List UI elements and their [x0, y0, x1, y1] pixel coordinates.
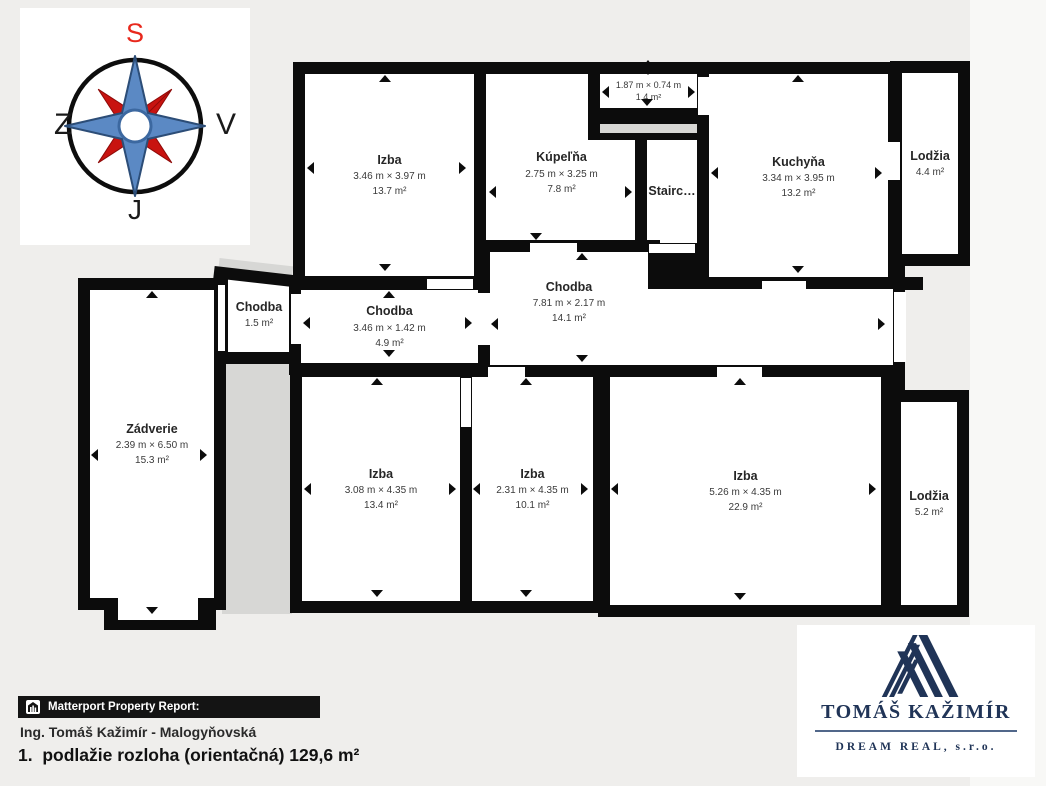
room-area: 15.3 m²	[116, 453, 189, 468]
room-dimensions: 3.46 m × 3.97 m	[353, 169, 426, 184]
wall-arrow-icon	[711, 167, 718, 179]
wall-arrow-icon	[304, 483, 311, 495]
room-name: Izba	[345, 465, 418, 484]
matterport-icon	[26, 700, 40, 714]
wall-arrow-icon	[641, 99, 653, 106]
door-opening	[762, 281, 806, 292]
room-dimensions: 7.81 m × 2.17 m	[533, 296, 606, 311]
room-name: Izba	[496, 465, 569, 484]
room-name: Izba	[353, 151, 426, 170]
room-dimensions: 3.34 m × 3.95 m	[762, 171, 835, 186]
door-opening	[291, 294, 301, 344]
room-kuchyna: Kuchyňa 3.34 m × 3.95 m 13.2 m²	[697, 62, 900, 292]
wall-arrow-icon	[379, 264, 391, 271]
matterport-report-bar: Matterport Property Report:	[18, 696, 320, 718]
wall-arrow-icon	[576, 253, 588, 260]
wall-arrow-icon	[91, 449, 98, 461]
wall-arrow-icon	[734, 593, 746, 600]
room-name: Kuchyňa	[762, 153, 835, 172]
wall-segment	[881, 368, 905, 394]
agency-name: TOMÁŠ KAŽIMÍR	[821, 701, 1011, 724]
wall-arrow-icon	[644, 70, 652, 75]
floorplan-report-page: S V J Z Zádverie 2.39 m × 6.50 m 15.3 m²…	[0, 0, 1046, 786]
wall-arrow-icon	[449, 483, 456, 495]
room-dimensions: 2.75 m × 3.25 m	[525, 167, 598, 182]
door-opening	[530, 243, 577, 253]
door-opening	[488, 367, 525, 377]
room-name: Chodba	[533, 278, 606, 297]
report-bar-label: Matterport Property Report:	[48, 701, 199, 713]
room-area: 14.1 m²	[533, 311, 606, 326]
compass-south-label: J	[128, 194, 142, 226]
room-izba-top-left: Izba 3.46 m × 3.97 m 13.7 m²	[293, 62, 486, 288]
agent-name: Ing. Tomáš Kažimír - Malogyňovská	[20, 724, 256, 740]
room-name: Kúpeľňa	[525, 148, 598, 167]
room-name: Stairc…	[648, 182, 695, 201]
wall-arrow-icon	[530, 233, 542, 240]
room-lodzia-bottom: Lodžia 5.2 m²	[889, 390, 969, 617]
room-area: 13.2 m²	[762, 186, 835, 201]
room-dimensions: 2.39 m × 6.50 m	[116, 438, 189, 453]
wall-arrow-icon	[459, 162, 466, 174]
wall-arrow-icon	[520, 590, 532, 597]
door-opening	[649, 244, 695, 253]
room-name: Chodba	[236, 298, 283, 317]
compass-north-label: S	[126, 18, 144, 49]
wall-arrow-icon	[146, 607, 158, 614]
door-opening	[427, 279, 473, 289]
wall-arrow-icon	[581, 483, 588, 495]
door-opening	[478, 293, 490, 345]
wall-arrow-icon	[688, 86, 695, 98]
room-area: 1.5 m²	[236, 316, 283, 331]
unexplored-area	[222, 360, 292, 614]
wall-arrow-icon	[869, 483, 876, 495]
wall-arrow-icon	[520, 378, 532, 385]
wall-arrow-icon	[200, 449, 207, 461]
wall-arrow-icon	[473, 483, 480, 495]
compass-rose: S V J Z	[20, 8, 250, 245]
stair-strip	[600, 124, 697, 133]
floor-summary: 1. podlažie rozloha (orientačná) 129,6 m…	[18, 745, 359, 766]
room-izba-bottom-right: Izba 5.26 m × 4.35 m 22.9 m²	[598, 365, 893, 617]
door-opening	[218, 285, 225, 351]
wall-arrow-icon	[307, 162, 314, 174]
room-dimensions: 2.31 m × 4.35 m	[496, 483, 569, 498]
room-chodba-main: Chodba 7.81 m × 2.17 m 14.1 m²	[478, 240, 660, 378]
room-area: 13.7 m²	[353, 184, 426, 199]
wall-arrow-icon	[303, 317, 310, 329]
room-area: 10.1 m²	[496, 498, 569, 513]
wall-arrow-icon	[379, 75, 391, 82]
wall-arrow-icon	[875, 167, 882, 179]
wall-arrow-icon	[878, 318, 885, 330]
compass-west-label: Z	[54, 108, 72, 142]
door-opening	[717, 367, 762, 377]
room-name: Chodba	[353, 302, 426, 321]
wall-arrow-icon	[611, 483, 618, 495]
door-opening	[894, 292, 906, 362]
wall-arrow-icon	[792, 266, 804, 273]
door-opening	[698, 77, 710, 115]
room-area: 4.9 m²	[353, 336, 426, 351]
room-dimensions: 5.26 m × 4.35 m	[709, 485, 782, 500]
wall-arrow-icon	[383, 350, 395, 357]
room-area: 4.4 m²	[910, 165, 950, 180]
room-zadverie: Zádverie 2.39 m × 6.50 m 15.3 m²	[78, 278, 226, 610]
wall-arrow-icon	[371, 590, 383, 597]
wall-arrow-icon	[792, 75, 804, 82]
room-name: Lodžia	[909, 487, 949, 506]
room-izba-bottom-left: Izba 3.08 m × 4.35 m 13.4 m²	[290, 365, 472, 613]
room-area: 13.4 m²	[345, 498, 418, 513]
wall-arrow-icon	[371, 378, 383, 385]
wall-arrow-icon	[602, 86, 609, 98]
wall-arrow-icon	[625, 186, 632, 198]
room-dimensions: 3.08 m × 4.35 m	[345, 483, 418, 498]
wall-segment	[648, 250, 700, 282]
room-dimensions: 1.87 m × 0.74 m	[616, 79, 681, 91]
wall-arrow-icon	[644, 60, 652, 65]
room-name: Zádverie	[116, 420, 189, 439]
wall-arrow-icon	[734, 378, 746, 385]
room-area: 7.8 m²	[525, 182, 598, 197]
wall-arrow-icon	[146, 291, 158, 298]
wall-arrow-icon	[465, 317, 472, 329]
room-lodzia-top: Lodžia 4.4 m²	[890, 61, 970, 266]
wall-arrow-icon	[383, 291, 395, 298]
wall-segment	[893, 277, 923, 290]
door-opening	[118, 598, 198, 620]
room-dimensions: 3.46 m × 1.42 m	[353, 321, 426, 336]
wall-arrow-icon	[489, 186, 496, 198]
room-area: 5.2 m²	[909, 505, 949, 520]
room-name: Izba	[709, 467, 782, 486]
agency-logo: TOMÁŠ KAŽIMÍR DREAM REAL, s.r.o.	[797, 625, 1035, 777]
agency-subtitle: DREAM REAL, s.r.o.	[836, 741, 997, 753]
wall-arrow-icon	[576, 355, 588, 362]
room-name: Lodžia	[910, 147, 950, 166]
compass-east-label: V	[216, 108, 236, 142]
door-opening	[887, 142, 900, 180]
room-area: 22.9 m²	[709, 500, 782, 515]
wall-arrow-icon	[491, 318, 498, 330]
door-opening	[461, 378, 471, 427]
logo-divider	[815, 730, 1017, 732]
room-chodba-main-east-arm	[648, 277, 905, 378]
mountain-logo-icon	[862, 635, 970, 697]
